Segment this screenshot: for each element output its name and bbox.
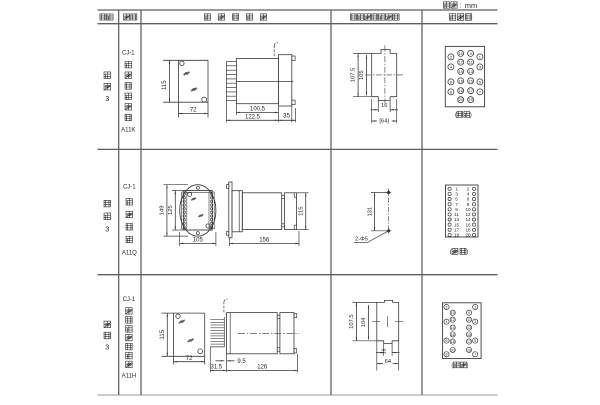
svg-text:): ) <box>470 113 472 119</box>
svg-text:2: 2 <box>446 305 448 309</box>
svg-text:9: 9 <box>468 311 470 315</box>
svg-text::: : <box>460 3 462 10</box>
svg-text:16: 16 <box>382 348 388 354</box>
svg-text:107.5: 107.5 <box>351 68 357 83</box>
svg-text:CJ-1: CJ-1 <box>123 297 136 303</box>
svg-text:104: 104 <box>361 317 367 327</box>
svg-text:107.5: 107.5 <box>349 314 355 329</box>
svg-text:10: 10 <box>458 51 463 56</box>
svg-text:12: 12 <box>451 318 455 322</box>
svg-text:A11Q: A11Q <box>122 250 137 256</box>
svg-text:19: 19 <box>468 97 473 102</box>
svg-text:115: 115 <box>160 329 166 339</box>
svg-text:16: 16 <box>451 333 455 337</box>
svg-text:20: 20 <box>465 233 471 238</box>
svg-text:15: 15 <box>468 78 473 83</box>
svg-text:17: 17 <box>467 340 471 344</box>
svg-text:CJ-1: CJ-1 <box>122 51 135 57</box>
svg-text:105: 105 <box>359 70 365 80</box>
svg-text:): ) <box>466 363 468 369</box>
svg-text:131: 131 <box>367 207 373 217</box>
svg-text:72: 72 <box>186 356 193 362</box>
svg-text:122.5: 122.5 <box>245 115 261 121</box>
svg-text:72: 72 <box>190 108 197 114</box>
svg-text:6: 6 <box>446 339 448 343</box>
svg-text:2-Φ5: 2-Φ5 <box>355 236 368 242</box>
svg-text:115: 115 <box>299 207 305 216</box>
svg-text:17: 17 <box>468 88 473 93</box>
svg-text:149: 149 <box>160 206 166 216</box>
svg-text:3: 3 <box>105 343 109 352</box>
svg-text:16: 16 <box>381 103 387 109</box>
svg-text:15: 15 <box>467 333 471 337</box>
svg-text:CJ-1: CJ-1 <box>123 184 136 190</box>
svg-text:): ) <box>466 249 468 256</box>
svg-text:14: 14 <box>451 326 455 330</box>
svg-text:64: 64 <box>385 359 392 365</box>
svg-text:mm: mm <box>465 1 478 10</box>
svg-text:7: 7 <box>474 353 476 357</box>
svg-text:A11H: A11H <box>122 374 137 380</box>
svg-text:19: 19 <box>454 233 460 238</box>
svg-text:115: 115 <box>162 80 168 90</box>
svg-text:18: 18 <box>458 88 463 93</box>
svg-text:11: 11 <box>467 318 471 322</box>
svg-text:16: 16 <box>458 78 463 83</box>
svg-text:9.5: 9.5 <box>237 359 246 365</box>
svg-text:12: 12 <box>458 60 463 65</box>
svg-text:13: 13 <box>468 69 473 74</box>
svg-text:3: 3 <box>105 225 109 234</box>
svg-text:20: 20 <box>458 97 463 102</box>
svg-text:100.5: 100.5 <box>250 106 266 112</box>
svg-text:35: 35 <box>283 114 290 120</box>
svg-text:156: 156 <box>259 238 270 244</box>
svg-text:4: 4 <box>446 320 448 324</box>
svg-text:10: 10 <box>451 311 455 315</box>
svg-text:13: 13 <box>467 326 471 330</box>
svg-text:14: 14 <box>458 69 463 74</box>
svg-text:18: 18 <box>451 340 455 344</box>
svg-text:31.5: 31.5 <box>210 364 222 370</box>
svg-text:3: 3 <box>105 94 109 103</box>
svg-text:8: 8 <box>446 353 448 357</box>
svg-text:A11K: A11K <box>121 128 135 134</box>
svg-text:19: 19 <box>467 348 471 352</box>
svg-text:5: 5 <box>474 339 476 343</box>
svg-text:20: 20 <box>451 348 455 352</box>
svg-text:125: 125 <box>168 205 174 215</box>
svg-text:[64]: [64] <box>379 119 389 125</box>
svg-text:(: ( <box>451 363 453 369</box>
svg-text:126: 126 <box>257 364 268 370</box>
svg-text:105: 105 <box>193 238 204 244</box>
svg-text:1: 1 <box>474 305 476 309</box>
svg-text:3: 3 <box>474 320 476 324</box>
